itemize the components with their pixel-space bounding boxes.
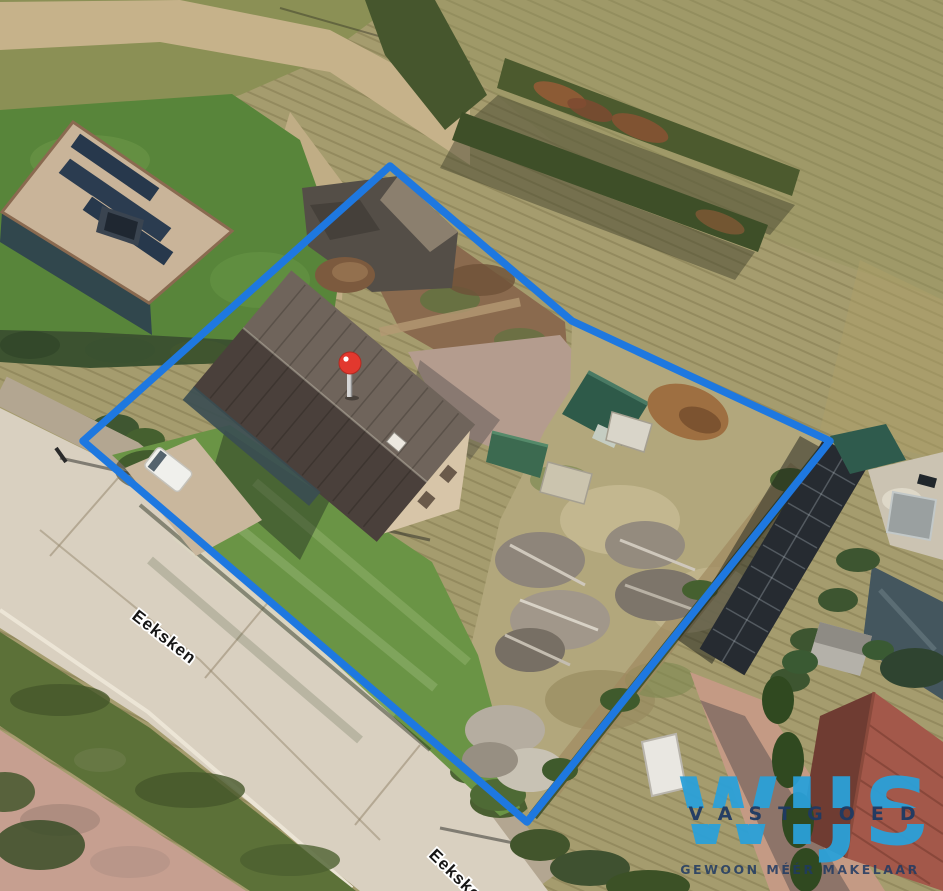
gray-container xyxy=(887,492,936,540)
pin-head xyxy=(339,352,361,374)
pin-highlight xyxy=(343,356,348,361)
satellite-photo: Eeksken Eeksken WIJS WIJS VASTGOED GEWOO… xyxy=(0,0,943,891)
aerial-listing-image: { "map": { "street_labels": ["Eeksken", … xyxy=(0,0,943,891)
brand-tagline: GEWOON MÉÉR MAKELAAR xyxy=(680,862,919,877)
brand-subtitle: VASTGOED xyxy=(688,803,931,825)
watermark-logo: WIJS WIJS VASTGOED GEWOON MÉÉR MAKELAAR xyxy=(677,758,936,877)
